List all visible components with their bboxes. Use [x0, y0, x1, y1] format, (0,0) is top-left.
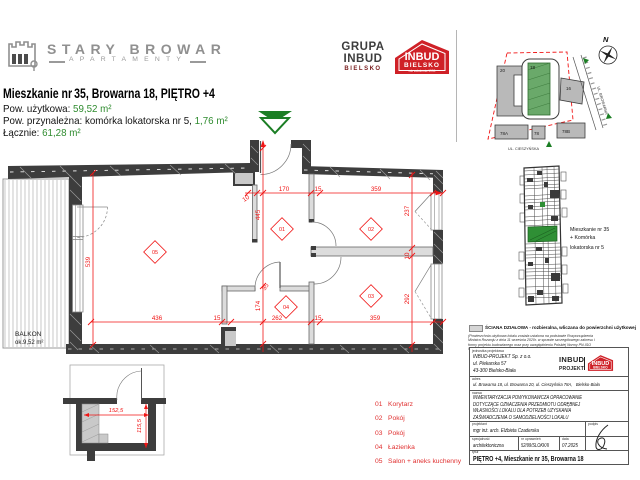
svg-text:01: 01 [279, 227, 285, 233]
svg-text:20: 20 [500, 68, 506, 73]
svg-text:lokatorska nr 5: lokatorska nr 5 [570, 245, 604, 251]
svg-text:35: 35 [261, 282, 271, 292]
svg-text:174: 174 [255, 300, 262, 311]
svg-text:UL. CIESZYŃSKA: UL. CIESZYŃSKA [508, 147, 539, 151]
svg-text:15: 15 [315, 315, 322, 322]
svg-text:262: 262 [272, 315, 283, 322]
svg-text:539: 539 [85, 256, 92, 267]
svg-text:359: 359 [370, 315, 381, 322]
svg-text:10: 10 [241, 194, 251, 204]
svg-text:05: 05 [152, 250, 158, 256]
svg-text:78: 78 [534, 131, 540, 136]
svg-text:292: 292 [404, 293, 411, 304]
svg-text:BIELSKO: BIELSKO [593, 366, 608, 370]
svg-text:Mieszkanie nr 35: Mieszkanie nr 35 [570, 227, 609, 233]
svg-text:18: 18 [530, 65, 536, 70]
svg-text:ok.9,52 m²: ok.9,52 m² [15, 340, 43, 346]
svg-text:78A: 78A [500, 131, 508, 136]
svg-text:115,5: 115,5 [137, 418, 143, 433]
svg-text:237: 237 [404, 205, 411, 216]
svg-text:10: 10 [404, 252, 411, 259]
svg-text:04: 04 [283, 305, 289, 311]
svg-text:15: 15 [214, 315, 221, 322]
svg-text:16: 16 [566, 86, 572, 91]
svg-text:N: N [603, 35, 609, 44]
svg-text:436: 436 [152, 315, 163, 322]
svg-text:02: 02 [368, 227, 374, 233]
svg-text:152,5: 152,5 [109, 408, 124, 414]
svg-text:03: 03 [368, 294, 374, 300]
svg-text:78B: 78B [562, 129, 570, 134]
svg-text:BALKON: BALKON [15, 331, 42, 338]
svg-text:445: 445 [255, 209, 262, 220]
svg-text:+ Komórka: + Komórka [570, 235, 595, 241]
svg-text:359: 359 [371, 186, 382, 193]
svg-text:170: 170 [279, 186, 290, 193]
svg-text:15: 15 [315, 186, 322, 193]
